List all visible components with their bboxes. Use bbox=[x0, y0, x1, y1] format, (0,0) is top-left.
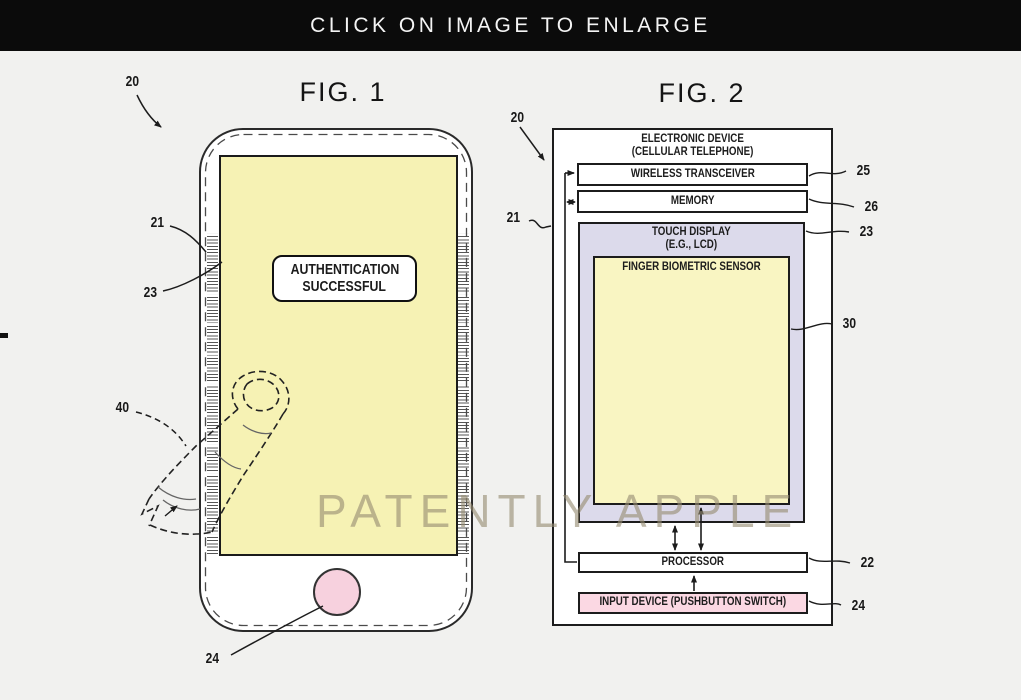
processor-label: PROCESSOR bbox=[662, 556, 724, 569]
patent-image[interactable]: CLICK ON IMAGE TO ENLARGE FIG. 1 AUTHENT… bbox=[0, 0, 1021, 700]
fig1-title: FIG. 1 bbox=[263, 77, 423, 108]
linework-overlay bbox=[0, 0, 1021, 700]
fig2-ref-25: 25 bbox=[848, 162, 878, 180]
fig2-leader-20 bbox=[520, 127, 544, 160]
processor-box: PROCESSOR bbox=[578, 552, 808, 573]
finger-biometric-sensor-box: FINGER BIOMETRIC SENSOR bbox=[593, 256, 790, 505]
fig1-ref-21: 21 bbox=[142, 214, 172, 232]
fig2-ref-23: 23 bbox=[851, 223, 881, 241]
left-edge-mark bbox=[0, 333, 8, 338]
fig1-ref-20: 20 bbox=[117, 73, 147, 91]
wireless-transceiver-box: WIRELESS TRANSCEIVER bbox=[577, 163, 808, 186]
fig1-ref-24: 24 bbox=[197, 650, 227, 668]
phone-bezel-hatch-left bbox=[207, 233, 218, 555]
fig1-ref-40: 40 bbox=[107, 399, 137, 417]
home-button-pushbutton bbox=[313, 568, 361, 616]
electronic-device-title-line2: (CELLULAR TELEPHONE) bbox=[632, 146, 754, 159]
fig2-ref-30: 30 bbox=[834, 315, 864, 333]
memory-label: MEMORY bbox=[671, 195, 715, 208]
enlarge-banner-text: CLICK ON IMAGE TO ENLARGE bbox=[310, 14, 711, 38]
input-device-box: INPUT DEVICE (PUSHBUTTON SWITCH) bbox=[578, 592, 808, 614]
fig2-leader-21 bbox=[529, 220, 551, 227]
fig2-title: FIG. 2 bbox=[622, 78, 782, 109]
fig1-leader-20 bbox=[137, 95, 161, 127]
phone-bezel-hatch-right bbox=[458, 233, 469, 555]
touch-display-title: TOUCH DISPLAY (E.G., LCD) bbox=[578, 226, 805, 253]
electronic-device-title: ELECTRONIC DEVICE (CELLULAR TELEPHONE) bbox=[556, 133, 829, 160]
input-device-label: INPUT DEVICE (PUSHBUTTON SWITCH) bbox=[600, 596, 787, 609]
authentication-message-line2: SUCCESSFUL bbox=[303, 279, 387, 295]
fig2-ref-22: 22 bbox=[852, 554, 882, 572]
touch-display-title-line2: (E.G., LCD) bbox=[652, 239, 731, 252]
memory-box: MEMORY bbox=[577, 190, 808, 213]
fig1-ref-23: 23 bbox=[135, 284, 165, 302]
fig2-ref-26: 26 bbox=[856, 198, 886, 216]
authentication-message-box: AUTHENTICATION SUCCESSFUL bbox=[272, 255, 417, 302]
finger-press-arrow bbox=[165, 506, 177, 516]
phone-touch-display bbox=[219, 155, 458, 556]
finger-biometric-sensor-label: FINGER BIOMETRIC SENSOR bbox=[622, 261, 760, 274]
fig2-ref-21: 21 bbox=[498, 209, 528, 227]
touch-display-title-line1: TOUCH DISPLAY bbox=[652, 226, 731, 239]
fig1-leader-40 bbox=[136, 412, 186, 446]
fig2-ref-20: 20 bbox=[502, 109, 532, 127]
authentication-message-line1: AUTHENTICATION bbox=[290, 262, 399, 278]
fig2-ref-24: 24 bbox=[843, 597, 873, 615]
wireless-transceiver-label: WIRELESS TRANSCEIVER bbox=[631, 168, 755, 181]
electronic-device-title-line1: ELECTRONIC DEVICE bbox=[632, 133, 754, 146]
enlarge-banner: CLICK ON IMAGE TO ENLARGE bbox=[0, 0, 1021, 51]
